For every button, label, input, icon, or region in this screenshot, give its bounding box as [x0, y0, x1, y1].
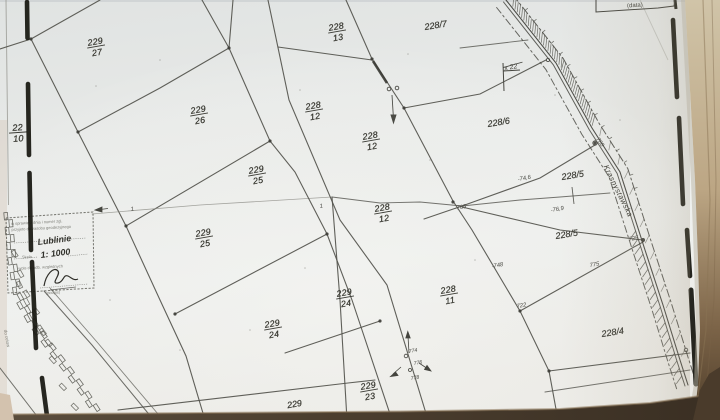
svg-text:Skala: Skala: [22, 254, 33, 260]
svg-text:25: 25: [198, 238, 211, 250]
svg-text:26: 26: [193, 115, 206, 127]
svg-text:(podpis): (podpis): [46, 290, 61, 296]
svg-text:12: 12: [366, 141, 378, 153]
svg-text:12: 12: [309, 111, 321, 123]
svg-text:10: 10: [13, 133, 24, 144]
svg-text:24: 24: [267, 329, 280, 341]
svg-text:25: 25: [251, 175, 264, 187]
svg-text:13: 13: [332, 32, 344, 44]
svg-text:11: 11: [444, 295, 455, 307]
svg-text:24: 24: [339, 298, 352, 310]
svg-text:12: 12: [378, 213, 390, 225]
svg-text:23: 23: [363, 391, 376, 403]
svg-text:22: 22: [11, 122, 23, 133]
